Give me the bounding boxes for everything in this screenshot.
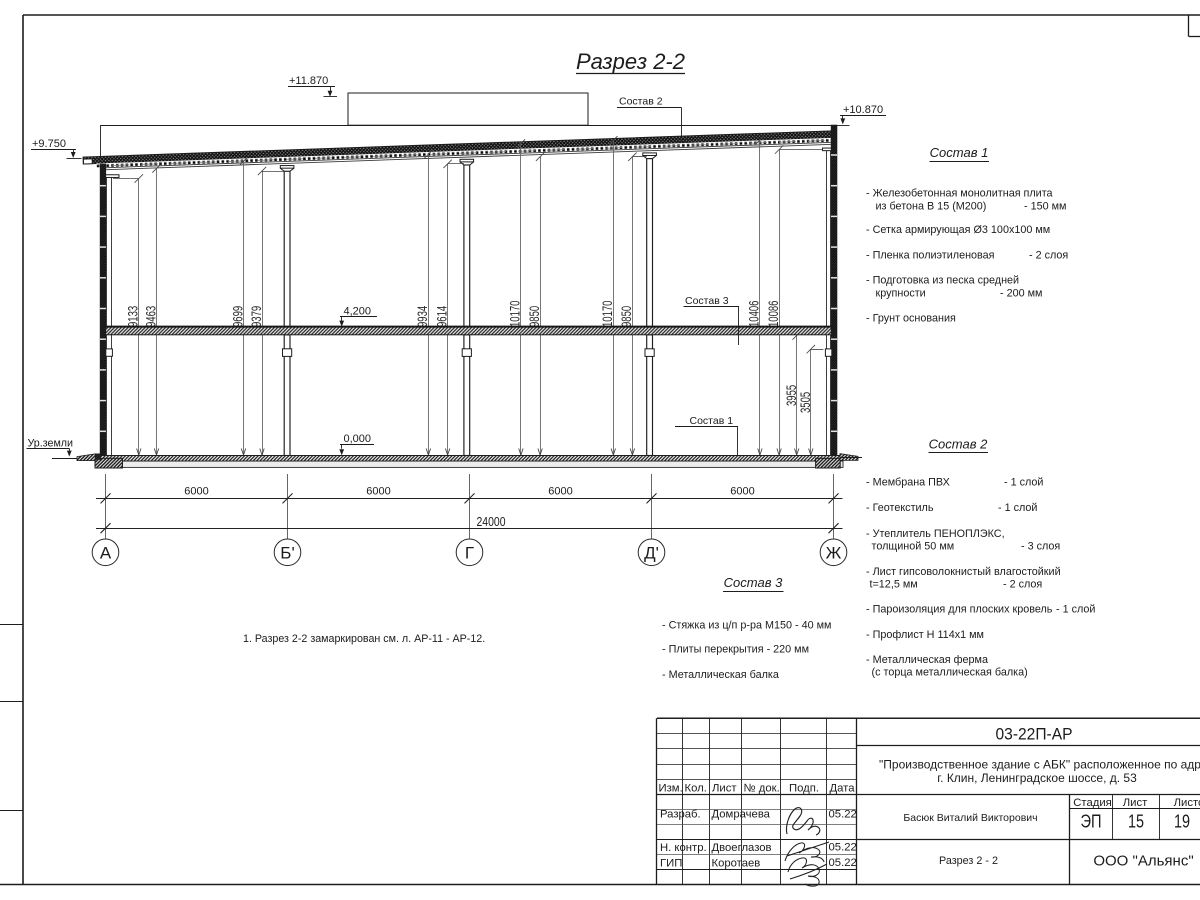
svg-text:Г: Г [465, 543, 474, 562]
svg-text:- Подготовка из песка средней: - Подготовка из песка средней [866, 275, 1019, 287]
svg-text:Разраб.: Разраб. [660, 809, 701, 821]
svg-text:Двоеглазов: Двоеглазов [712, 842, 772, 854]
svg-text:Изм.: Изм. [659, 782, 683, 794]
svg-text:- 2 слоя: - 2 слоя [1003, 579, 1042, 591]
svg-text:03-22П-АР: 03-22П-АР [996, 725, 1073, 744]
svg-text:Состав 2: Состав 2 [929, 437, 988, 452]
svg-text:t=12,5 мм: t=12,5 мм [870, 579, 918, 591]
svg-text:- Пароизоляция для плоских кро: - Пароизоляция для плоских кровель [866, 604, 1053, 616]
svg-text:9850: 9850 [526, 306, 542, 327]
svg-text:ГИП: ГИП [660, 858, 682, 870]
svg-text:24000: 24000 [477, 514, 506, 529]
svg-text:Подп.: Подп. [789, 782, 819, 794]
svg-text:- 1 слой: - 1 слой [1004, 477, 1043, 489]
svg-text:Домрачева: Домрачева [712, 809, 771, 821]
svg-text:"Производственное здание с АБК: "Производственное здание с АБК" располож… [879, 758, 1200, 772]
svg-text:Басюк Виталий Викторович: Басюк Виталий Викторович [903, 812, 1037, 824]
svg-text:6000: 6000 [184, 486, 208, 498]
svg-text:Д': Д' [644, 543, 659, 562]
svg-text:9699: 9699 [229, 306, 245, 327]
svg-text:05.22: 05.22 [829, 857, 857, 869]
svg-text:10170: 10170 [507, 300, 523, 327]
svg-text:Состав 3: Состав 3 [685, 295, 729, 307]
svg-text:(с торца металлическая балка): (с торца металлическая балка) [872, 667, 1028, 679]
svg-text:+9.750: +9.750 [32, 138, 66, 150]
svg-text:№ док.: № док. [744, 782, 780, 794]
svg-text:- Плиты перекрытия - 220 мм: - Плиты перекрытия - 220 мм [662, 644, 809, 656]
svg-text:05.22: 05.22 [829, 809, 857, 821]
svg-text:- 2 слоя: - 2 слоя [1029, 250, 1068, 262]
svg-text:9379: 9379 [248, 306, 264, 327]
svg-text:А: А [100, 543, 112, 562]
svg-text:- Стяжка из ц/п р-ра М150 - 40: - Стяжка из ц/п р-ра М150 - 40 мм [662, 620, 831, 632]
svg-text:- Железобетонная монолитная п: - Железобетонная монолитная плита [866, 188, 1053, 200]
svg-text:Н. контр.: Н. контр. [660, 842, 707, 854]
svg-text:- Металлическая балка: - Металлическая балка [662, 669, 779, 681]
svg-text:6000: 6000 [548, 486, 572, 498]
svg-text:10086: 10086 [765, 300, 781, 327]
svg-text:Листов: Листов [1174, 797, 1200, 809]
svg-text:Состав 3: Состав 3 [724, 575, 783, 590]
svg-text:Ур.земли: Ур.земли [28, 438, 74, 450]
svg-text:Стадия: Стадия [1073, 797, 1112, 809]
svg-text:- Металлическая ферма: - Металлическая ферма [866, 654, 988, 666]
svg-text:крупности: крупности [876, 288, 926, 300]
svg-text:9850: 9850 [618, 306, 634, 327]
svg-text:Б': Б' [280, 543, 294, 562]
svg-text:6000: 6000 [366, 486, 390, 498]
svg-text:0,000: 0,000 [344, 433, 372, 445]
svg-text:05.22: 05.22 [829, 842, 857, 854]
svg-text:9463: 9463 [142, 306, 158, 327]
svg-text:4,200: 4,200 [344, 306, 372, 318]
svg-text:Лист: Лист [1123, 797, 1148, 809]
svg-text:ООО "Альянс": ООО "Альянс" [1093, 853, 1193, 870]
svg-text:9614: 9614 [434, 306, 450, 327]
svg-text:9934: 9934 [414, 306, 430, 327]
svg-text:Кол.: Кол. [685, 782, 707, 794]
svg-text:19: 19 [1174, 811, 1190, 832]
svg-text:Состав 2: Состав 2 [619, 96, 663, 108]
svg-text:+11.870: +11.870 [289, 75, 328, 87]
svg-text:1. Разрез 2-2 замаркирован см.: 1. Разрез 2-2 замаркирован см. л. АР-11 … [243, 633, 485, 645]
svg-text:Ж: Ж [826, 543, 842, 562]
svg-text:Состав 1: Состав 1 [690, 415, 734, 427]
svg-text:Состав 1: Состав 1 [930, 145, 989, 160]
svg-text:- Лист гипсоволокнистый влагос: - Лист гипсоволокнистый влагостойкий [866, 566, 1061, 578]
svg-text:- 150 мм: - 150 мм [1024, 201, 1066, 213]
svg-text:- Геотекстиль: - Геотекстиль [866, 502, 934, 514]
svg-text:10406: 10406 [746, 300, 762, 327]
svg-text:Лист: Лист [712, 782, 737, 794]
svg-text:15: 15 [1128, 811, 1144, 832]
svg-text:6000: 6000 [730, 486, 754, 498]
svg-text:Разрез 2 - 2: Разрез 2 - 2 [939, 855, 998, 867]
svg-text:г. Клин, Ленинградское шоссе,: г. Клин, Ленинградское шоссе, д. 53 [937, 771, 1137, 785]
svg-text:Дата: Дата [830, 782, 856, 794]
svg-text:- Утеплитель ПЕНОПЛЭКС,: - Утеплитель ПЕНОПЛЭКС, [866, 528, 1005, 540]
svg-text:3505: 3505 [797, 392, 813, 413]
svg-text:ЭП: ЭП [1081, 811, 1102, 832]
svg-text:Коротаев: Коротаев [712, 858, 761, 870]
svg-text:- Грунт основания: - Грунт основания [866, 313, 956, 325]
svg-text:- 3 слоя: - 3 слоя [1021, 541, 1060, 553]
svg-text:- 1 слой: - 1 слой [998, 502, 1037, 514]
svg-text:- Сетка армирующая Ø3 100х100: - Сетка армирующая Ø3 100х100 мм [866, 224, 1050, 236]
svg-text:9133: 9133 [125, 306, 141, 327]
svg-text:10170: 10170 [599, 300, 615, 327]
svg-text:- 200 мм: - 200 мм [1000, 288, 1042, 300]
svg-text:- Профлист Н 114х1 мм: - Профлист Н 114х1 мм [866, 629, 984, 641]
svg-text:из бетона В 15 (М200): из бетона В 15 (М200) [876, 201, 987, 213]
svg-text:Разрез 2-2: Разрез 2-2 [576, 49, 685, 74]
svg-text:- Пленка полиэтиленовая: - Пленка полиэтиленовая [866, 250, 995, 262]
svg-text:толщиной 50 мм: толщиной 50 мм [872, 541, 955, 553]
svg-text:+10.870: +10.870 [843, 104, 883, 116]
svg-text:- Мембрана ПВХ: - Мембрана ПВХ [866, 477, 950, 489]
svg-text:- 1 слой: - 1 слой [1056, 604, 1095, 616]
